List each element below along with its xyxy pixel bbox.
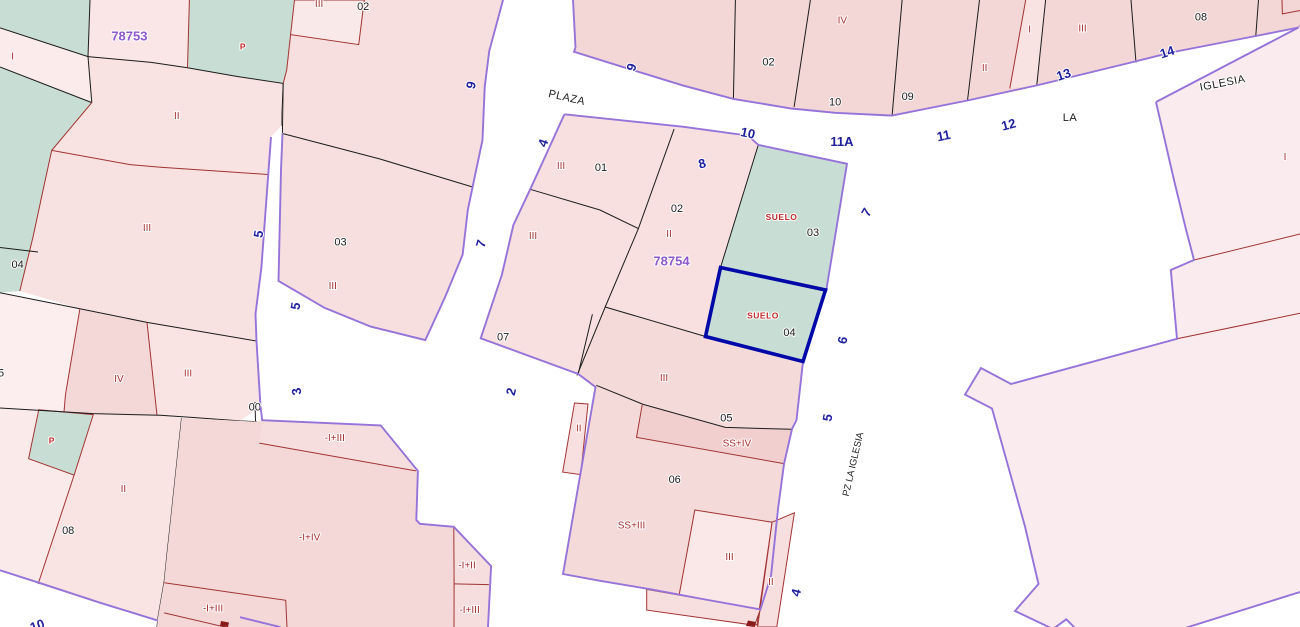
svg-text:III: III bbox=[660, 373, 668, 384]
svg-text:II: II bbox=[121, 484, 127, 495]
svg-text:10: 10 bbox=[829, 97, 841, 109]
svg-text:-I+III: -I+III bbox=[203, 603, 223, 614]
svg-text:-I+IV: -I+IV bbox=[299, 533, 321, 544]
svg-text:10: 10 bbox=[739, 124, 756, 142]
svg-text:III: III bbox=[529, 231, 537, 242]
svg-text:02: 02 bbox=[357, 1, 369, 13]
svg-text:-I+III: -I+III bbox=[325, 433, 345, 444]
svg-text:SS+IV: SS+IV bbox=[723, 438, 752, 449]
svg-text:SS+III: SS+III bbox=[618, 521, 646, 532]
svg-text:II: II bbox=[768, 577, 774, 588]
svg-text:I: I bbox=[1284, 152, 1287, 163]
svg-text:II: II bbox=[666, 229, 672, 240]
svg-text:III: III bbox=[143, 223, 151, 234]
svg-text:07: 07 bbox=[497, 331, 509, 343]
svg-text:-I+II: -I+II bbox=[458, 561, 476, 572]
svg-text:P: P bbox=[240, 41, 246, 51]
svg-text:04: 04 bbox=[783, 327, 795, 339]
svg-text:I: I bbox=[11, 52, 14, 63]
svg-text:5: 5 bbox=[0, 368, 4, 380]
svg-text:08: 08 bbox=[62, 525, 74, 537]
svg-text:II: II bbox=[576, 424, 582, 435]
svg-text:LA: LA bbox=[1063, 112, 1078, 124]
svg-text:IV: IV bbox=[114, 374, 124, 385]
svg-text:SUELO: SUELO bbox=[747, 311, 779, 321]
svg-text:IV: IV bbox=[838, 16, 848, 27]
svg-text:78753: 78753 bbox=[111, 29, 147, 44]
svg-text:02: 02 bbox=[762, 57, 774, 69]
svg-text:03: 03 bbox=[334, 237, 346, 249]
svg-text:09: 09 bbox=[902, 91, 914, 103]
svg-text:III: III bbox=[557, 161, 565, 172]
svg-text:02: 02 bbox=[671, 203, 683, 215]
svg-text:01: 01 bbox=[595, 162, 607, 174]
svg-text:-I+III: -I+III bbox=[459, 605, 479, 616]
svg-text:P: P bbox=[49, 435, 55, 445]
svg-text:II: II bbox=[174, 111, 180, 122]
svg-text:I: I bbox=[1028, 25, 1031, 36]
svg-text:III: III bbox=[329, 281, 337, 292]
svg-text:II: II bbox=[982, 63, 988, 74]
svg-text:04: 04 bbox=[11, 259, 23, 271]
svg-text:III: III bbox=[725, 552, 733, 563]
svg-text:SUELO: SUELO bbox=[766, 212, 798, 222]
svg-text:06: 06 bbox=[669, 474, 681, 486]
svg-text:05: 05 bbox=[720, 412, 732, 424]
svg-text:00: 00 bbox=[249, 402, 261, 414]
svg-text:78754: 78754 bbox=[653, 254, 690, 269]
svg-text:III: III bbox=[315, 0, 323, 10]
svg-text:III: III bbox=[1078, 24, 1086, 35]
svg-text:III: III bbox=[184, 369, 192, 380]
svg-text:11A: 11A bbox=[830, 134, 854, 149]
svg-text:03: 03 bbox=[807, 227, 819, 239]
svg-text:08: 08 bbox=[1195, 12, 1207, 24]
